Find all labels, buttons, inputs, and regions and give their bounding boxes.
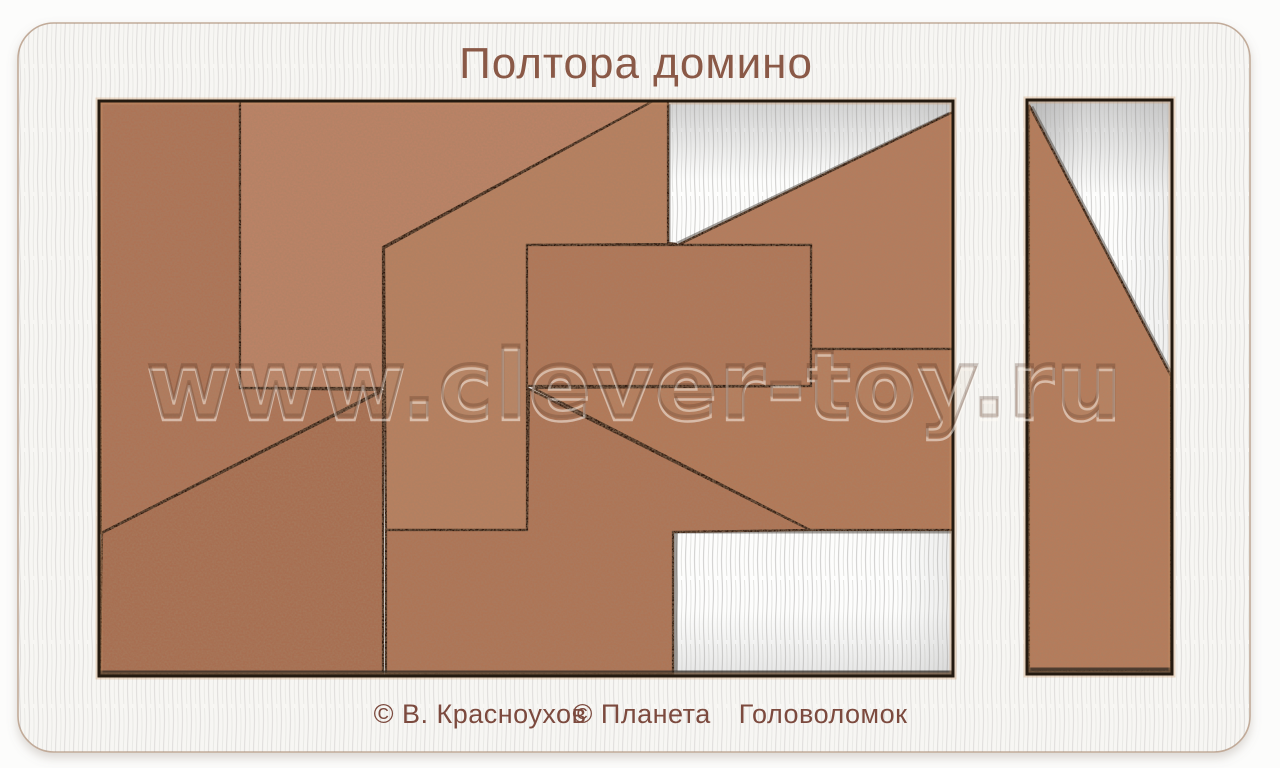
puzzle-title: Полтора домино: [459, 39, 813, 88]
credit-publisher: © Планета Головоломок: [573, 699, 908, 729]
watermark: www.clever-toy.ru www.clever-toy.ru www.…: [147, 330, 1124, 442]
watermark-text: www.clever-toy.ru: [147, 332, 1124, 439]
puzzle-photo: Полтора домино www.clever-toy.ru www.cle…: [0, 0, 1280, 768]
credit-author: © В. Красноухов: [374, 699, 587, 729]
puzzle-scene: Полтора домино www.clever-toy.ru www.cle…: [0, 0, 1280, 768]
